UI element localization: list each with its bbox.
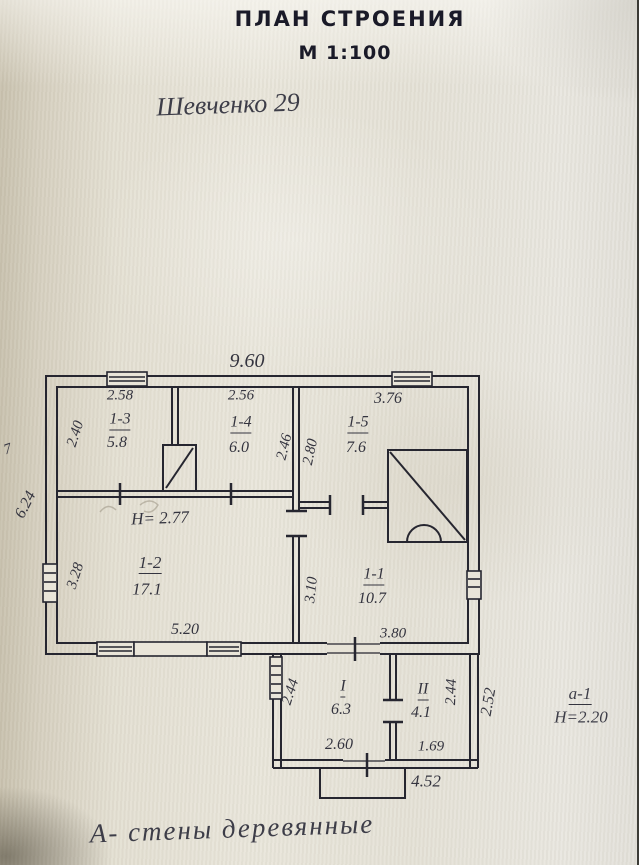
room-1-3-area: 5.8 bbox=[107, 435, 127, 451]
room-1-5-id: 1-5 bbox=[347, 415, 368, 434]
porch-step bbox=[320, 768, 405, 798]
room-1-4-id: 1-4 bbox=[230, 415, 251, 434]
dim-top-total: 9.60 bbox=[230, 351, 265, 371]
room-1-4-area: 6.0 bbox=[229, 440, 249, 456]
annex-ref-id: а-1 bbox=[569, 685, 592, 705]
window-icon bbox=[392, 372, 432, 386]
dim-room-I-width: 2.60 bbox=[325, 737, 353, 753]
dim-annex-bottom-total: 4.52 bbox=[411, 773, 441, 790]
scanned-floor-plan-page: ПЛАН СТРОЕНИЯ М 1:100 bbox=[0, 0, 639, 865]
dim-room-1-1-width: 3.80 bbox=[380, 627, 406, 642]
dim-room-1-2-width: 5.20 bbox=[171, 622, 199, 638]
room-1-2-id: 1-2 bbox=[139, 554, 162, 574]
address-note: Шевченко 29 bbox=[156, 90, 300, 121]
room-1-5-area: 7.6 bbox=[346, 440, 366, 456]
room-1-1-id: 1-1 bbox=[363, 567, 384, 586]
annex-walls bbox=[270, 637, 478, 798]
dim-room-II-width: 1.69 bbox=[418, 740, 444, 755]
floor-plan-drawing bbox=[0, 0, 639, 865]
window-icon bbox=[107, 372, 147, 386]
window-icon bbox=[134, 642, 207, 656]
window-icon bbox=[97, 642, 134, 656]
window-icon bbox=[467, 571, 481, 599]
room-1-2-area: 17.1 bbox=[132, 581, 162, 598]
dim-room-II-depth: 2.44 bbox=[444, 679, 460, 706]
dim-room-1-5-width: 3.76 bbox=[374, 391, 402, 407]
annex-ref-height: H=2.20 bbox=[554, 709, 608, 726]
room-I-area: 6.3 bbox=[331, 702, 351, 718]
window-icon bbox=[207, 642, 241, 656]
dim-room-1-1-depth: 3.10 bbox=[303, 576, 321, 604]
room-1-3-id: 1-3 bbox=[109, 412, 130, 431]
stove-door-arc-icon bbox=[407, 525, 441, 542]
room-II-area: 4.1 bbox=[411, 705, 431, 721]
room-II-id: II bbox=[418, 682, 429, 701]
dim-room-1-4-width: 2.56 bbox=[228, 389, 254, 404]
room-1-1-area: 10.7 bbox=[358, 591, 386, 607]
room-I-id: I bbox=[340, 679, 345, 698]
dim-room-1-3-width: 2.58 bbox=[107, 389, 133, 404]
window-icon bbox=[43, 564, 57, 602]
ceiling-height-note: H= 2.77 bbox=[131, 508, 189, 527]
